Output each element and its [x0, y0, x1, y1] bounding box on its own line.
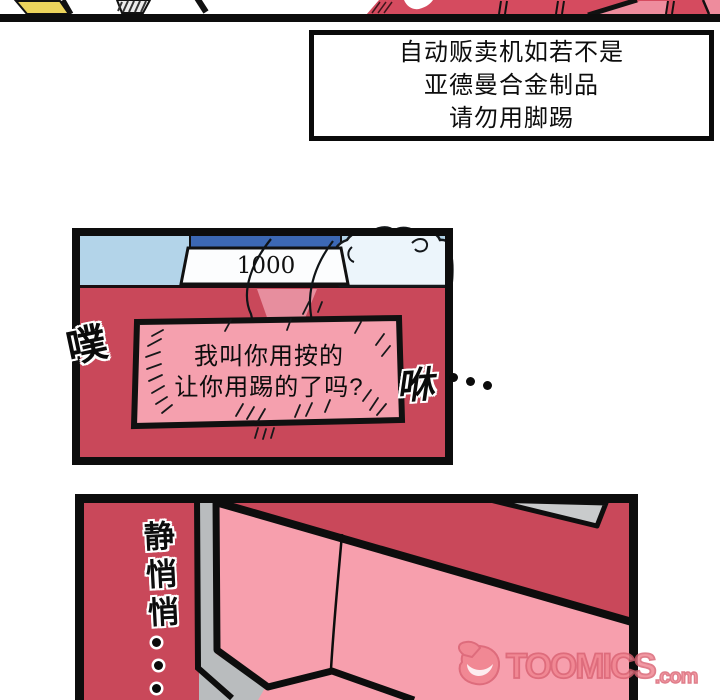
price-display: 1000 [216, 253, 316, 279]
watermark-tld: .com [655, 666, 698, 689]
sign-line: 让你用踢的了吗? [137, 372, 401, 403]
top-panel-art [0, 0, 720, 22]
warning-sign-text: 我叫你用按的 让你用踢的了吗? [137, 341, 401, 403]
watermark: TOOMICS .com [452, 640, 697, 694]
watermark-brand: TOOMICS [506, 647, 655, 687]
notice-line: 亚德曼合金制品 [424, 69, 599, 102]
sign-line: 我叫你用按的 [137, 341, 401, 372]
comic-page: 自动贩卖机如若不是 亚德曼合金制品 请勿用脚踢 1000 我叫你用按的 让你用踢… [0, 0, 720, 700]
notice-box: 自动贩卖机如若不是 亚德曼合金制品 请勿用脚踢 [309, 30, 714, 141]
watermark-logo-icon [452, 640, 506, 694]
sfx-whoosh-dots [449, 373, 500, 382]
sfx-quiet: 静悄悄 [133, 519, 184, 635]
sfx-quiet-dots [152, 638, 161, 700]
notice-line: 请勿用脚踢 [449, 102, 574, 135]
notice-line: 自动贩卖机如若不是 [399, 36, 624, 69]
